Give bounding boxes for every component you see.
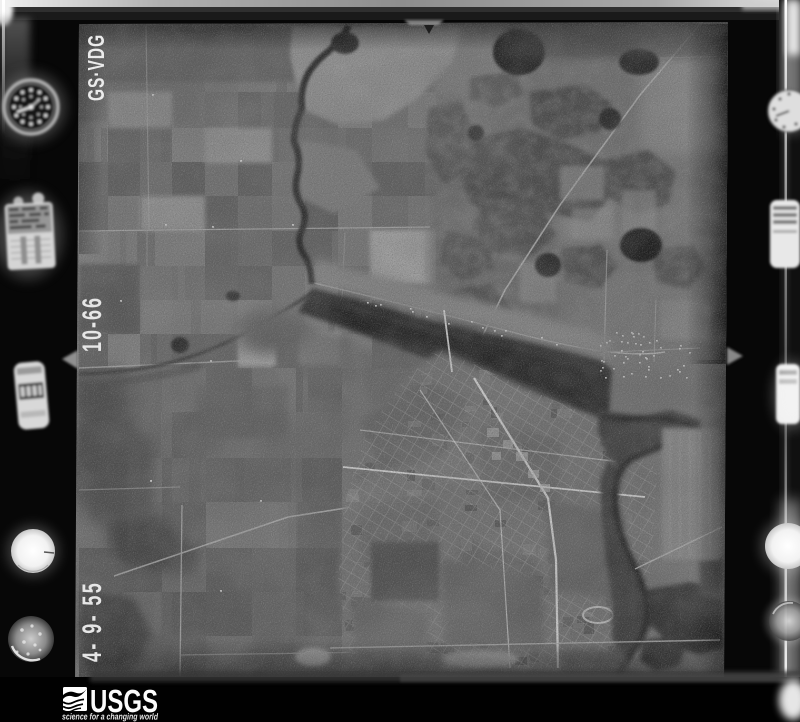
svg-text:10-66: 10-66 bbox=[76, 296, 107, 352]
svg-text:GS·VDG: GS·VDG bbox=[84, 34, 110, 101]
svg-text:4- 9- 55: 4- 9- 55 bbox=[76, 581, 107, 662]
svg-text:science for a changing world: science for a changing world bbox=[62, 712, 158, 722]
